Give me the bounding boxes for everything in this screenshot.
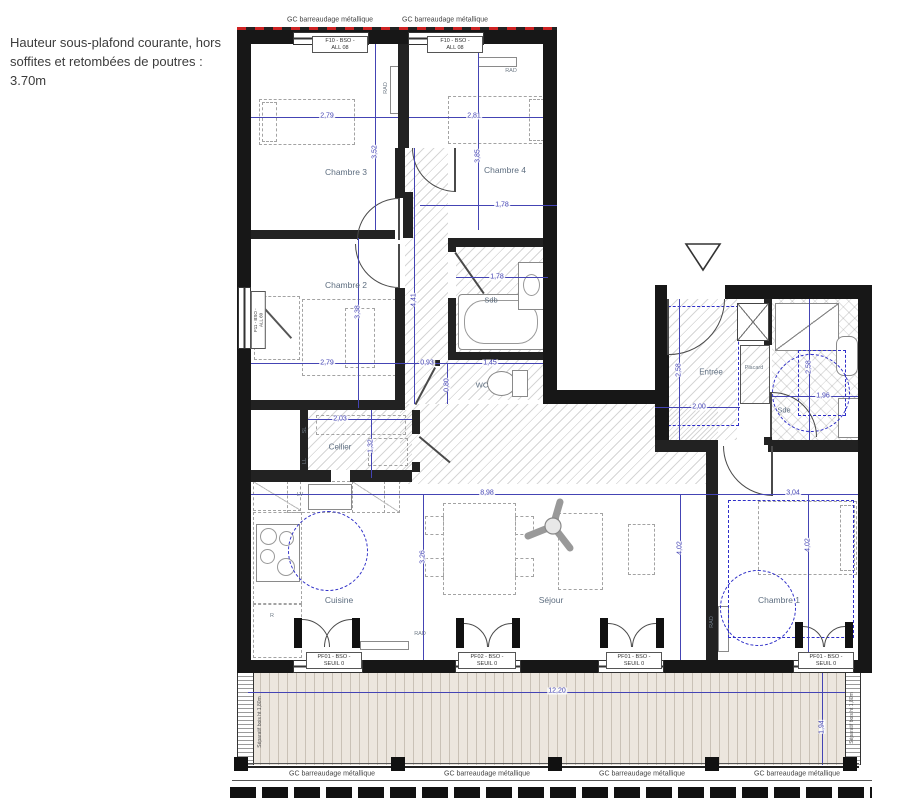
gc-label: GC barreaudage métallique	[402, 17, 488, 24]
red-limit-line	[237, 27, 557, 30]
door-tag: PF01 - BSO - SEUIL 0	[606, 652, 662, 669]
door-leaf	[398, 244, 400, 288]
turning-circle	[720, 570, 796, 646]
fridge-label: R	[270, 613, 274, 619]
pillow	[529, 99, 544, 141]
door-opening	[667, 285, 725, 299]
room-label: Chambre 4	[484, 165, 526, 175]
room-label: Chambre 3	[325, 167, 367, 177]
dimension-line	[251, 363, 543, 364]
dryer-label: SL	[302, 427, 308, 434]
dimension-label: 3,52	[372, 145, 379, 159]
kitchen-sink	[308, 484, 352, 510]
dimension-line	[478, 44, 479, 230]
dimension-label: 2,79	[319, 360, 335, 367]
turning-circle	[288, 511, 368, 591]
partition-wall	[395, 148, 405, 198]
partition-wall	[251, 470, 331, 482]
door-jamb	[512, 618, 520, 648]
door-tag-line: PF02 - BSO -	[461, 654, 513, 661]
partition-wall	[403, 192, 413, 238]
property-line	[230, 787, 872, 798]
ceiling-height-note: Hauteur sous-plafond courante, hors soff…	[10, 34, 240, 91]
door-tag-line: PF01 - BSO -	[309, 654, 359, 661]
partition-wall	[448, 298, 456, 354]
radiator-label: RAD	[709, 616, 715, 628]
duct-box	[737, 303, 769, 341]
wall	[858, 285, 872, 673]
door-jamb	[656, 618, 664, 648]
room-label: Entrée	[699, 368, 723, 377]
radiator	[360, 641, 409, 650]
table	[443, 503, 516, 595]
partition-wall	[706, 452, 718, 660]
shelf	[316, 415, 406, 435]
room-label: Chambre 1	[758, 595, 800, 605]
dimension-label: 4,02	[677, 541, 684, 555]
dimension-label: 8,98	[479, 490, 495, 497]
partition-wall	[395, 288, 405, 410]
post	[705, 757, 719, 771]
dimension-label: 1,96	[815, 393, 831, 400]
door-jamb	[845, 622, 853, 648]
dimension-label: 2,79	[319, 113, 335, 120]
dimension-line	[375, 44, 376, 230]
window-tag: F11 - BSO - ALL 60	[251, 291, 266, 349]
partition-wall	[398, 44, 409, 148]
partition-wall	[412, 462, 420, 472]
room-label: Séjour	[539, 595, 564, 605]
dimension-label: 3,38	[355, 305, 362, 319]
dimension-label: 1,94	[819, 720, 826, 734]
dimension-label: 3,85	[475, 149, 482, 163]
door-tag-line: SEUIL 0	[309, 661, 359, 668]
door-leaf	[770, 392, 772, 437]
dishwasher-label: LV	[297, 492, 303, 498]
chair	[425, 516, 444, 535]
shower	[775, 303, 839, 351]
dimension-label: 2,58	[806, 360, 813, 374]
partition-wall	[655, 440, 718, 452]
door-leaf	[398, 198, 400, 240]
radiator-label: RAD	[383, 82, 389, 94]
dimension-label: 12,20	[547, 688, 567, 695]
pillow	[262, 102, 277, 142]
dimension-label: 1,78	[494, 202, 510, 209]
room-label: Cellier	[329, 443, 352, 452]
corner-cabinet	[253, 481, 301, 511]
gc-label: GC barreaudage métallique	[287, 17, 373, 24]
door-tag: PF01 - BSO - SEUIL 0	[306, 652, 362, 669]
partition-wall	[412, 410, 420, 434]
window-tag-line: ALL 08	[430, 45, 480, 52]
wood-separator	[237, 673, 254, 765]
door-jamb	[294, 618, 302, 648]
room-label: Placard	[745, 365, 764, 371]
dimension-label: 2,03	[332, 416, 348, 423]
door-tag-line: SEUIL 0	[461, 661, 513, 668]
radiator-label: RAD	[414, 631, 426, 637]
window	[238, 287, 251, 349]
room-label: Cuisine	[325, 595, 353, 605]
door-tag-line: SEUIL 0	[609, 661, 659, 668]
wall	[543, 30, 557, 404]
bracket-line	[232, 780, 872, 781]
partition-wall	[251, 400, 403, 410]
dimension-line	[680, 494, 681, 660]
dimension-line	[358, 238, 359, 408]
window-tag-line: ALL 60	[258, 294, 263, 346]
dimension-label: 0,93	[419, 360, 435, 367]
post	[391, 757, 405, 771]
wall	[543, 390, 669, 404]
dimension-line	[808, 494, 809, 660]
door-leaf	[667, 299, 669, 355]
separator-label: Séparatif bois ht 1,80m	[849, 692, 855, 743]
radiator-label: RAD	[505, 68, 517, 74]
post	[843, 757, 857, 771]
dimension-label: 1,78	[489, 274, 505, 281]
dimension-line	[414, 148, 415, 404]
dimension-label: 3,26	[420, 550, 427, 564]
wall	[237, 30, 557, 44]
chair	[425, 558, 444, 577]
door-tag: PF01 - BSO - SEUIL 0	[798, 652, 854, 669]
post	[548, 757, 562, 771]
dimension-label: 2,81	[466, 113, 482, 120]
corner-cabinet	[352, 481, 400, 513]
toilet-tank	[512, 370, 528, 397]
door-tag-line: PF01 - BSO -	[801, 654, 851, 661]
door-leaf	[454, 148, 456, 192]
chair	[515, 558, 534, 577]
door-tag-line: SEUIL 0	[801, 661, 851, 668]
separator-label: Séparatif bois ht 1,80m	[257, 696, 263, 747]
dimension-label: 4,02	[805, 538, 812, 552]
gc-label: GC barreaudage métallique	[444, 771, 530, 778]
ceiling-fan-icon	[520, 498, 584, 558]
partition-wall	[350, 470, 412, 482]
dimension-label: 1,45	[482, 360, 498, 367]
door-tag: PF02 - BSO - SEUIL 0	[458, 652, 516, 669]
door-jamb	[795, 622, 803, 648]
hob-burner	[260, 528, 277, 545]
dimension-label: 1,32	[368, 439, 375, 453]
door-tag-line: PF01 - BSO -	[609, 654, 659, 661]
room-label: Chambre 2	[325, 280, 367, 290]
gc-label: GC barreaudage métallique	[754, 771, 840, 778]
partition-wall	[448, 238, 543, 247]
placard-closet	[740, 345, 770, 404]
sofa	[628, 524, 655, 575]
room-label: WC	[476, 381, 489, 390]
dimension-label: 4,41	[411, 293, 418, 307]
dimension-label: 2,00	[691, 404, 707, 411]
window-tag-line: F10 - BSO -	[430, 38, 480, 45]
room-label: Sde	[777, 406, 790, 415]
hob-burner	[260, 549, 275, 564]
door-jamb	[352, 618, 360, 648]
door-jamb	[600, 618, 608, 648]
dimension-line	[308, 419, 412, 420]
door-jamb	[456, 618, 464, 648]
room-label: Sdb	[484, 296, 497, 305]
gc-label: GC barreaudage métallique	[289, 771, 375, 778]
washer-label: LL	[302, 458, 308, 464]
window-tag-line: ALL 08	[315, 45, 365, 52]
window-tag: F10 - BSO - ALL 08	[312, 36, 368, 53]
dimension-label: 0,80	[444, 378, 451, 392]
window-tag: F10 - BSO - ALL 08	[427, 36, 483, 53]
radiator	[478, 57, 517, 67]
gc-label: GC barreaudage métallique	[599, 771, 685, 778]
dimension-label: 3,04	[785, 490, 801, 497]
dimension-label: 2,58	[676, 363, 683, 377]
floor-plan: Hauteur sous-plafond courante, hors soff…	[0, 0, 911, 800]
partition-wall	[768, 440, 858, 452]
window-tag-line: F10 - BSO -	[315, 38, 365, 45]
dimension-line	[420, 205, 557, 206]
entry-marker-icon	[683, 241, 723, 273]
post	[234, 757, 248, 771]
door-leaf	[771, 446, 773, 496]
wall	[237, 30, 251, 673]
